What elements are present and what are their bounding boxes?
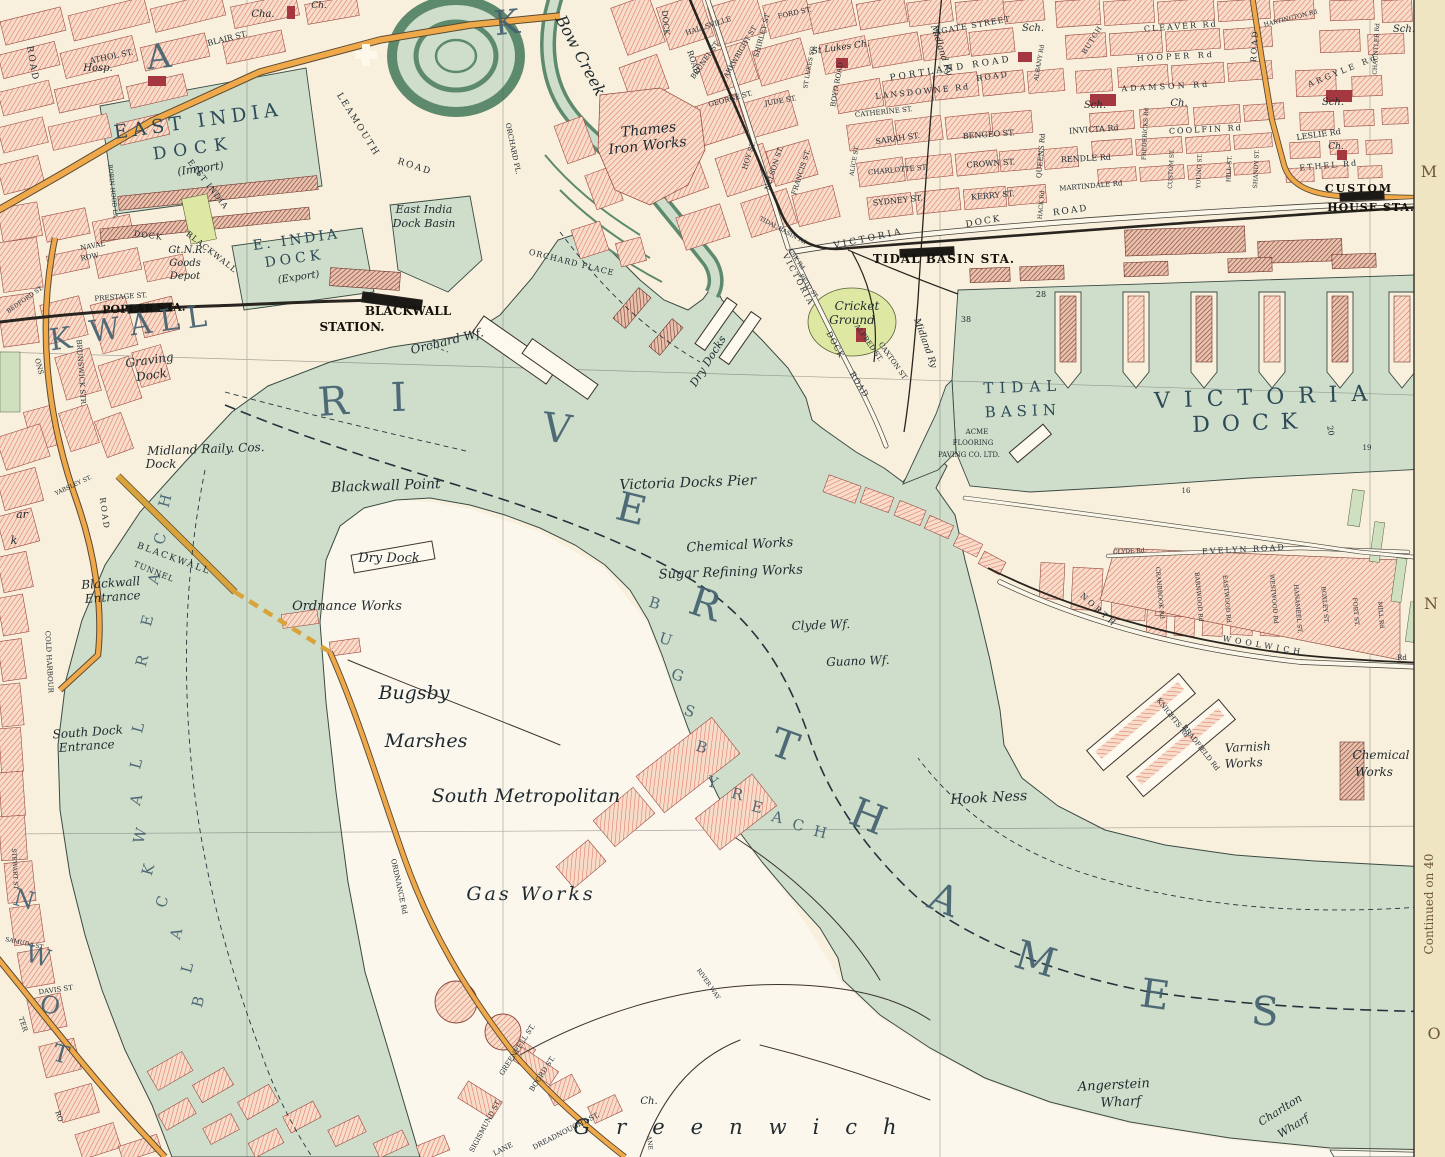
margin-o: O [1427, 1024, 1440, 1043]
city-block [969, 28, 1015, 56]
city-block [1039, 562, 1065, 599]
city-block [0, 683, 24, 727]
city-block [1075, 69, 1112, 93]
district-letter-k: K [492, 2, 522, 44]
city-block [1193, 104, 1240, 125]
pier-warehouse [1394, 296, 1410, 362]
chapel-2: Ch. [311, 1, 327, 11]
chemical2-1: Chemical [1353, 748, 1410, 762]
city-block [1382, 108, 1409, 125]
gas-works: Gas Works [466, 883, 595, 905]
custom-house-sta-1: CUSTOM [1325, 182, 1393, 195]
city-block [0, 771, 26, 817]
chemical2-2: Works [1355, 765, 1393, 779]
cricket-ground-1: Cricket [835, 299, 880, 313]
victoria-dock-2: DOCK [1192, 409, 1310, 438]
chapel-1: Cha. [251, 9, 274, 20]
frag-ar: ar [16, 508, 29, 521]
sch-1: Sch. [1084, 100, 1106, 111]
blackwall-station-1: BLACKWALL [365, 304, 452, 318]
city-block [1185, 134, 1230, 153]
ch-greenwich: Ch. [640, 1096, 657, 1107]
lane-2: ANE [645, 1135, 653, 1151]
vintage-london-map: BLAIR ST.ATHOL ST.Hosp.Cha.Ch.AKROADEAST… [0, 0, 1445, 1157]
city-block [1366, 140, 1392, 155]
pier-warehouse [1196, 296, 1212, 362]
sch-2: Sch. [1022, 23, 1044, 34]
city-block [1140, 164, 1185, 181]
varnish-2: Works [1224, 755, 1263, 771]
city-block [0, 237, 43, 292]
dry-dock: Dry Dock [357, 551, 420, 566]
num-28: 28 [1036, 290, 1046, 299]
city-block [1290, 141, 1321, 158]
city-block [1165, 28, 1220, 52]
city-block [970, 267, 1010, 282]
road-ne-v: ROAD [1249, 29, 1260, 62]
city-block [1055, 0, 1101, 28]
city-block [1125, 226, 1246, 256]
city-block [1020, 265, 1064, 281]
tidal-basin-sta: TIDAL BASIN STA. [873, 252, 1015, 266]
city-block [1320, 29, 1361, 52]
blackwall-station-2: STATION. [320, 320, 385, 334]
city-block [1109, 30, 1162, 56]
city-block [1228, 257, 1272, 273]
city-block [1217, 0, 1270, 22]
sch-4: Sch. [1393, 24, 1415, 35]
pier-warehouse [1332, 296, 1348, 362]
custom-house-sta-2: HOUSE STA. [1327, 201, 1415, 214]
city-block [1188, 163, 1231, 180]
pier-warehouse [1060, 296, 1076, 362]
num-16: 16 [1182, 487, 1191, 495]
map-canvas: BLAIR ST.ATHOL ST.Hosp.Cha.Ch.AKROADEAST… [0, 0, 1445, 1157]
city-block [1223, 26, 1272, 49]
greenwich: Greenwich [573, 1115, 922, 1139]
sch-3: Sch. [1322, 97, 1344, 108]
river-i: I [390, 375, 407, 422]
hosp: Hosp. [82, 63, 112, 74]
num-19: 19 [1363, 444, 1372, 452]
guano-wf: Guano Wf. [826, 653, 890, 669]
frag-k: k [11, 534, 18, 547]
clyde-wf: Clyde Wf. [791, 617, 850, 633]
ch-2: Ch. [1328, 142, 1344, 152]
kwall-w: W [87, 311, 123, 350]
angerstein-2: Wharf [1100, 1094, 1143, 1111]
city-block [1124, 261, 1168, 277]
num-38: 38 [961, 315, 971, 324]
river-r1: R [316, 378, 351, 426]
continued-note: Continued on 40 [1422, 854, 1436, 955]
ei-basin-1: East India [395, 203, 453, 216]
city-block [1332, 253, 1376, 269]
varnish-1: Varnish [1224, 739, 1271, 755]
bugsby-marshes-1: Bugsby [377, 682, 449, 704]
hill-st: HILL ST. [1225, 155, 1233, 182]
city-block [1382, 0, 1413, 23]
tidal-basin-1: TIDAL [983, 377, 1062, 398]
north-woolwich-3: Rd [1397, 654, 1407, 662]
midland-dock-2: Dock [145, 457, 177, 471]
city-block [1103, 0, 1155, 26]
district-letter-a: A [144, 36, 174, 78]
gnr-goods-3: Depot [169, 271, 201, 282]
gnr-goods-2: Goods [169, 258, 201, 269]
acme-1: ACME [965, 428, 989, 436]
ei-basin-2: Dock Basin [392, 217, 456, 230]
ordnance-works: Ordnance Works [292, 599, 402, 614]
bugsby-marshes-2: Marshes [384, 730, 468, 752]
pier-warehouse [1264, 296, 1280, 362]
city-block [1330, 0, 1375, 21]
city-block [1243, 103, 1284, 122]
margin-n: N [1424, 594, 1438, 613]
city-block [1358, 166, 1382, 179]
tidal-basin-2: BASIN [984, 401, 1061, 422]
cricket-ground-2: Ground [829, 313, 875, 327]
south-metropolitan: South Metropolitan [432, 785, 620, 807]
city-block [1344, 109, 1375, 126]
thames-s: S [1250, 988, 1281, 1036]
city-block [1234, 133, 1273, 150]
num-20: 20 [1325, 425, 1336, 437]
city-block [0, 727, 24, 772]
city-block [1352, 75, 1383, 96]
margin-m: M [1421, 162, 1437, 181]
acme-3: PAVING CO. LTD. [938, 451, 1000, 459]
ch-1: Ch. [1170, 98, 1187, 109]
acme-2: FLOORING [953, 439, 994, 447]
pier-warehouse [1128, 296, 1144, 362]
